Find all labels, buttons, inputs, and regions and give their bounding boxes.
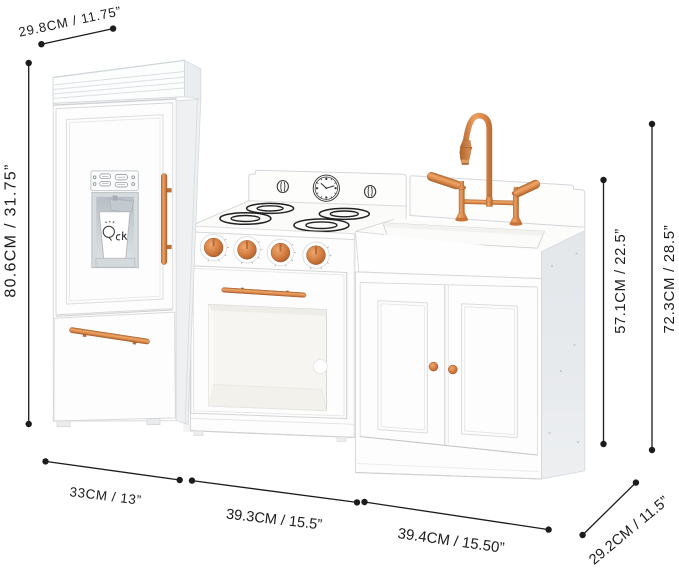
svg-text:57.1CM / 22.5”: 57.1CM / 22.5” xyxy=(613,228,629,334)
svg-text:72.3CM / 28.5”: 72.3CM / 28.5” xyxy=(661,224,678,333)
svg-text:80.6CM / 31.75”: 80.6CM / 31.75” xyxy=(3,163,20,297)
